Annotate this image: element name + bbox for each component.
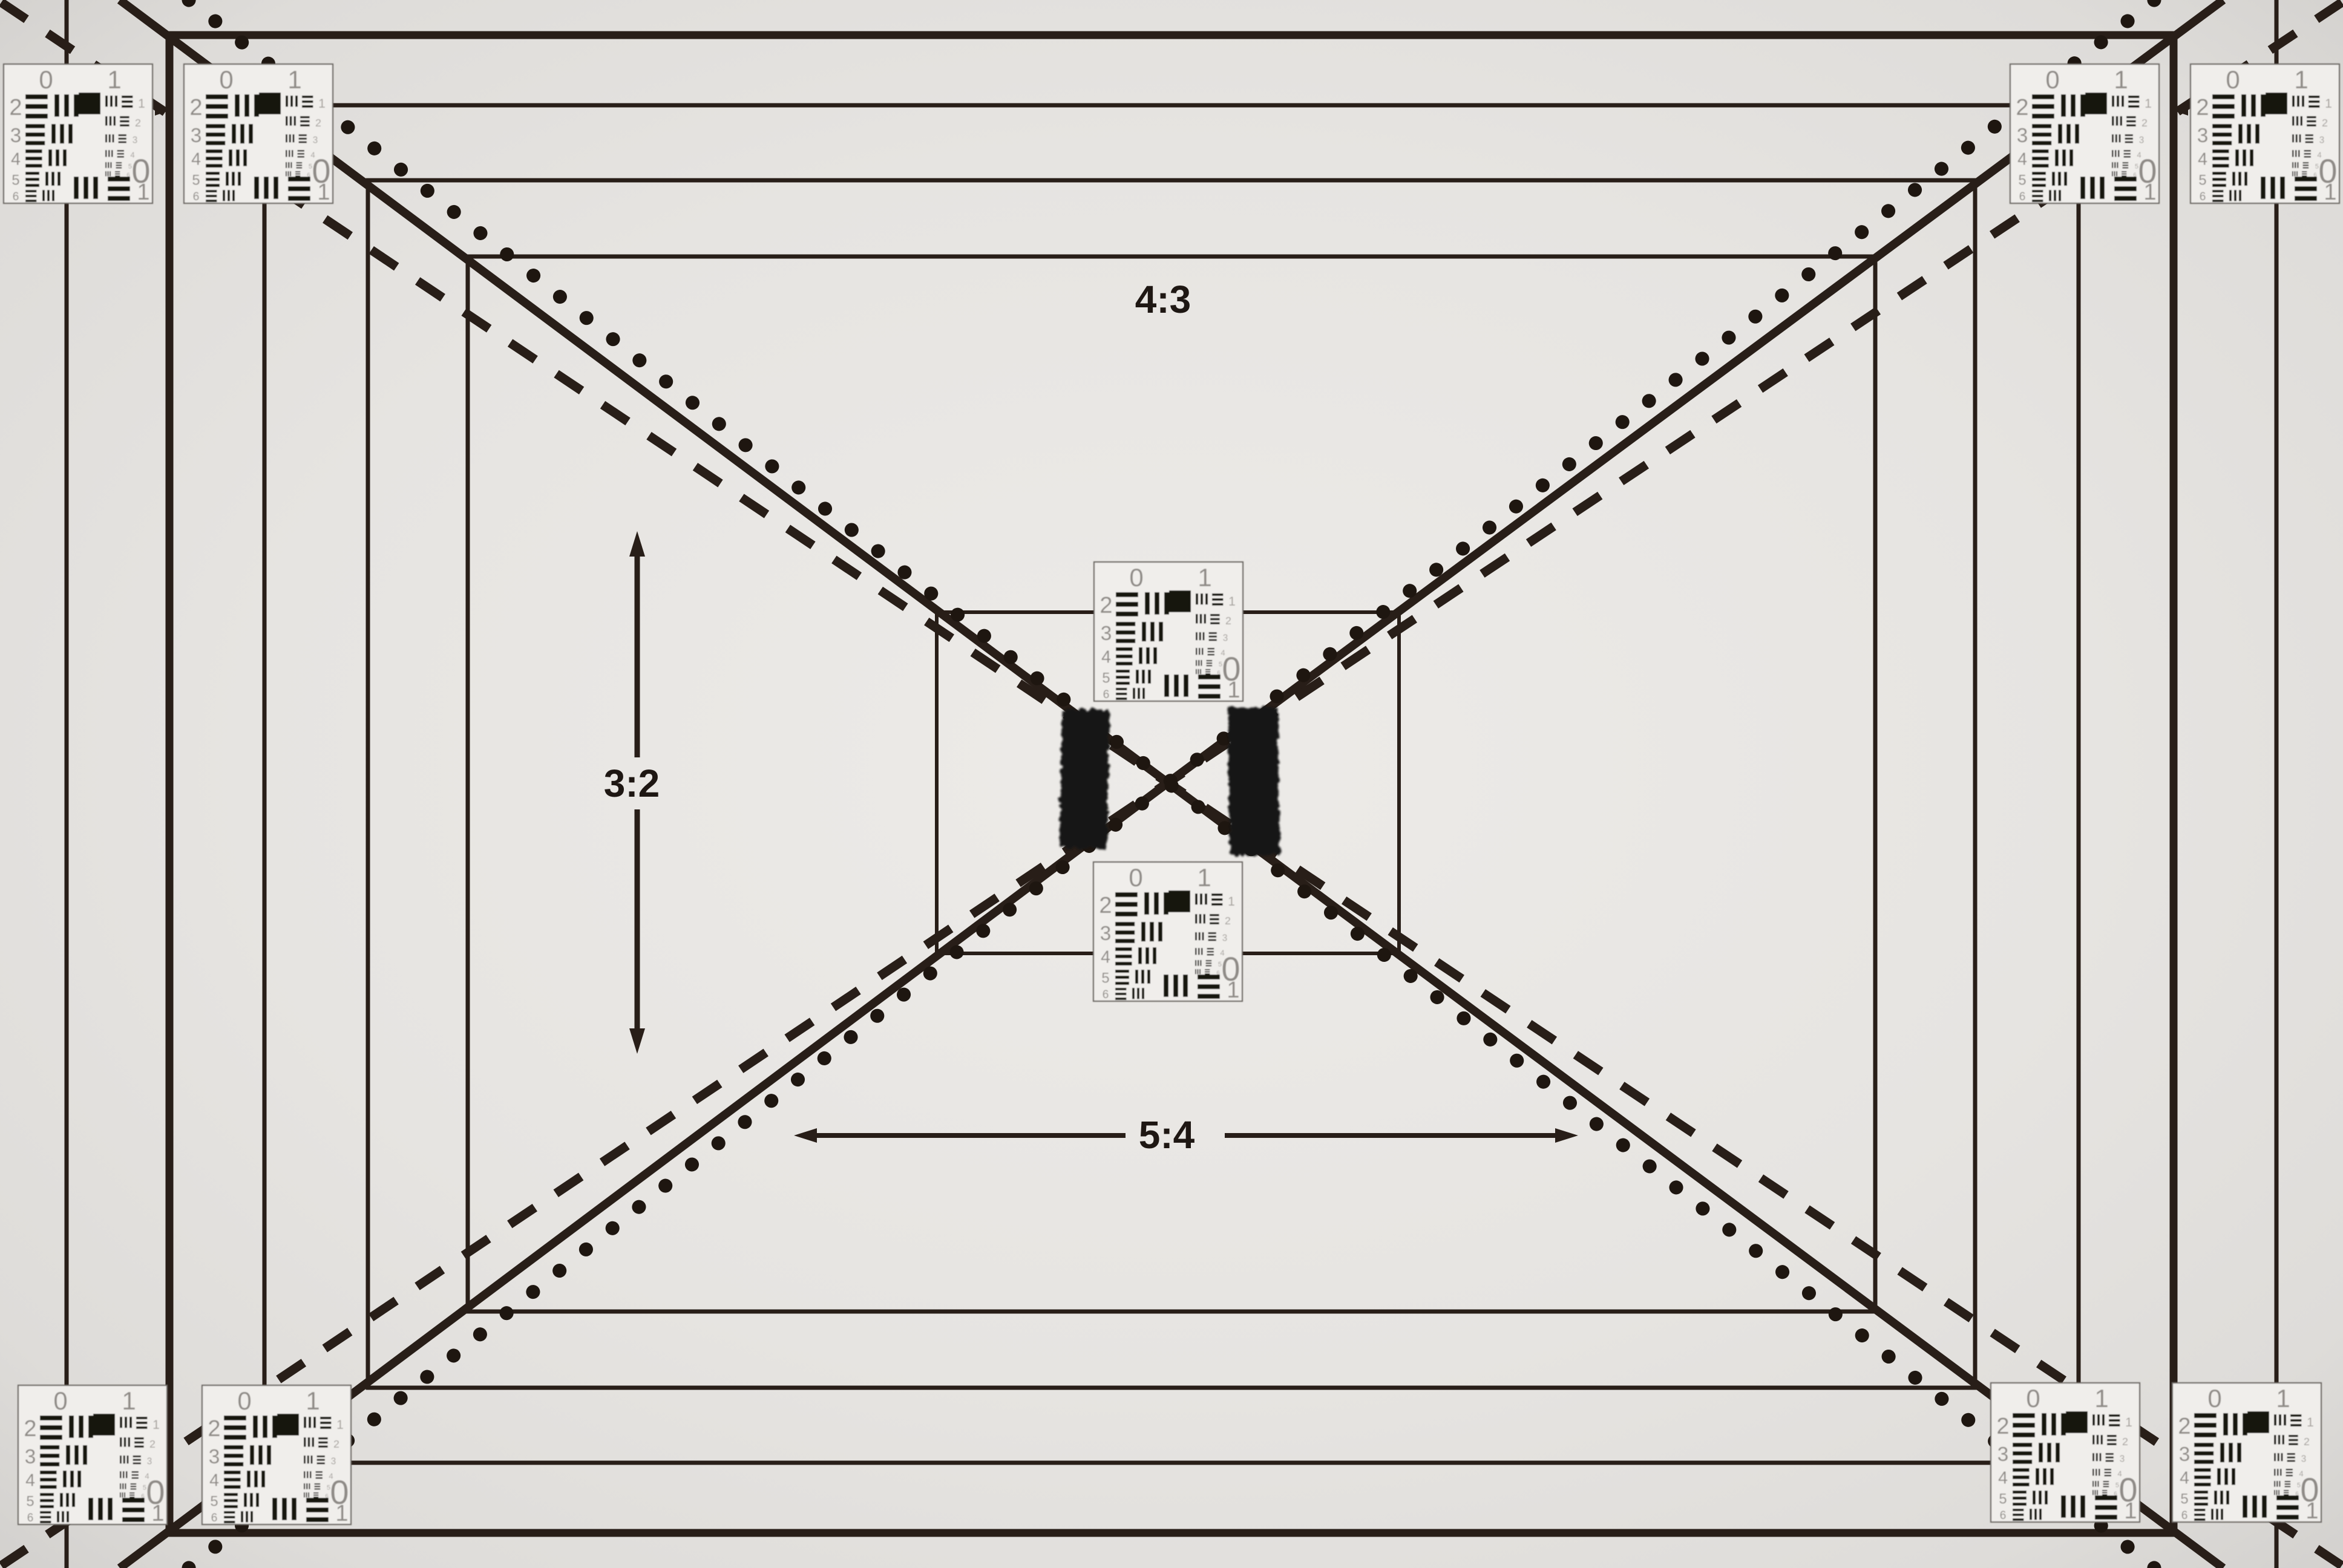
target-outer-top-right: 012345612345601	[2191, 64, 2339, 205]
target-number: 3	[1223, 633, 1228, 644]
target-number: 6	[13, 191, 19, 203]
target-number: 2	[333, 1438, 339, 1450]
target-number: 1	[2325, 97, 2332, 111]
target-number: 0	[2226, 65, 2240, 94]
target-number: 1	[122, 1387, 136, 1415]
target-number: 1	[138, 97, 145, 111]
target-inner-top-left: 012345612345601	[184, 64, 333, 205]
target-number: 0	[1129, 863, 1142, 892]
target-number: 4	[25, 1471, 35, 1491]
target-number: 2	[208, 1416, 220, 1442]
aspect-label-3-2: 3:2	[604, 762, 660, 805]
velcro-bar-right	[1228, 707, 1280, 855]
target-number: 3	[209, 1446, 220, 1468]
target-number: 4	[1998, 1469, 2008, 1488]
target-number: 3	[133, 136, 137, 146]
target-number: 5	[1999, 1491, 2007, 1507]
test-chart-photo: 4:3 3:2 5:4 0123456123456010123456123456…	[0, 0, 2343, 1568]
target-number: 3	[2179, 1443, 2191, 1466]
target-inner-bottom-right: 012345612345601	[1991, 1383, 2140, 1524]
target-number: 2	[9, 95, 22, 120]
target-number: 5	[210, 1493, 218, 1509]
target-number: 3	[191, 125, 202, 147]
target-number: 1	[1228, 895, 1235, 909]
target-number: 3	[1100, 923, 1112, 945]
target-number: 1	[287, 65, 301, 94]
target-number: 0	[237, 1387, 251, 1415]
target-number: 3	[1101, 622, 1112, 645]
target-number: 6	[211, 1512, 218, 1524]
aspect-label-4-3: 4:3	[1135, 278, 1191, 321]
target-number: 2	[2304, 1436, 2310, 1448]
target-number: 4	[1101, 948, 1110, 967]
target-number: 1	[2324, 180, 2336, 205]
target-number: 5	[2018, 172, 2026, 188]
target-number: 1	[151, 1501, 164, 1526]
target-number: 5	[26, 1493, 34, 1509]
target-outer-bottom-left: 012345612345601	[18, 1385, 167, 1526]
target-number: 1	[2307, 1416, 2314, 1429]
target-number: 2	[1225, 915, 1231, 927]
target-number: 3	[331, 1457, 336, 1467]
target-number: 6	[2181, 1509, 2188, 1522]
target-number: 1	[152, 1418, 160, 1432]
target-number: 2	[135, 117, 141, 129]
target-number: 0	[53, 1387, 67, 1415]
target-number: 1	[2094, 1384, 2108, 1413]
target-number: 3	[2120, 1454, 2125, 1465]
target-number: 2	[1099, 893, 1112, 918]
target-number: 2	[2016, 95, 2028, 120]
target-number: 3	[2301, 1454, 2306, 1465]
target-number: 1	[2114, 65, 2128, 94]
target-number: 6	[27, 1512, 34, 1524]
target-number: 1	[2294, 65, 2308, 94]
target-number: 1	[2125, 1416, 2132, 1429]
target-number: 0	[2026, 1384, 2040, 1413]
target-inner-top-right: 012345612345601	[2010, 64, 2159, 205]
target-number: 2	[2141, 117, 2148, 129]
target-number: 3	[313, 136, 318, 146]
target-center-bottom: 012345612345601	[1093, 862, 1242, 1003]
target-number: 2	[2196, 95, 2209, 120]
target-number: 1	[137, 180, 149, 205]
target-number: 0	[1129, 563, 1143, 592]
target-number: 6	[1103, 688, 1110, 701]
aspect-label-5-4: 5:4	[1139, 1113, 1195, 1157]
target-number: 3	[2139, 136, 2144, 146]
target-number: 2	[1099, 593, 1112, 618]
target-number: 1	[336, 1418, 344, 1432]
target-number: 0	[2045, 65, 2059, 94]
target-number: 3	[10, 125, 22, 147]
target-number: 6	[2200, 191, 2206, 203]
target-number: 1	[1198, 563, 1211, 592]
target-outer-bottom-right: 012345612345601	[2172, 1383, 2321, 1524]
target-number: 3	[25, 1446, 36, 1468]
target-number: 2	[189, 95, 202, 120]
target-number: 2	[149, 1438, 156, 1450]
target-number: 5	[11, 172, 19, 188]
target-number: 1	[335, 1501, 348, 1526]
target-number: 0	[2207, 1384, 2221, 1413]
target-number: 5	[2180, 1491, 2188, 1507]
target-number: 4	[2198, 150, 2207, 169]
target-number: 3	[1997, 1443, 2009, 1466]
target-number: 1	[2305, 1498, 2318, 1524]
target-number: 4	[209, 1471, 219, 1491]
target-number: 5	[1102, 670, 1110, 686]
target-number: 1	[317, 180, 330, 205]
target-number: 5	[1101, 970, 1109, 986]
target-number: 5	[192, 172, 200, 188]
target-number: 1	[1227, 978, 1239, 1003]
target-number: 2	[2122, 1436, 2128, 1448]
target-number: 2	[315, 117, 321, 129]
target-number: 4	[11, 150, 21, 169]
target-number: 3	[1222, 933, 1227, 944]
target-number: 2	[1225, 615, 1231, 627]
target-number: 1	[2145, 97, 2152, 111]
lens-test-chart: 4:3 3:2 5:4 0123456123456010123456123456…	[0, 0, 2343, 1568]
target-number: 1	[2276, 1384, 2290, 1413]
target-number: 3	[2197, 125, 2209, 147]
target-number: 6	[2000, 1509, 2007, 1522]
target-number: 0	[219, 65, 233, 94]
target-number: 2	[24, 1416, 36, 1442]
target-number: 6	[193, 191, 200, 203]
target-number: 1	[306, 1387, 319, 1415]
target-number: 6	[1103, 988, 1109, 1001]
target-number: 2	[2178, 1414, 2191, 1439]
target-number: 6	[2019, 191, 2026, 203]
target-number: 2	[2322, 117, 2328, 129]
velcro-bar-left	[1060, 708, 1110, 849]
target-number: 1	[2124, 1498, 2137, 1524]
target-number: 5	[2198, 172, 2206, 188]
target-number: 1	[1197, 863, 1211, 892]
target-outer-top-left: 012345612345601	[4, 64, 152, 205]
target-number: 3	[2017, 125, 2028, 147]
target-number: 3	[147, 1457, 152, 1467]
target-number: 2	[1996, 1414, 2009, 1439]
target-number: 1	[1228, 595, 1236, 609]
target-number: 4	[191, 150, 201, 169]
target-number: 4	[2017, 150, 2027, 169]
target-number: 0	[39, 65, 53, 94]
target-number: 4	[2180, 1469, 2189, 1488]
target-number: 1	[107, 65, 121, 94]
target-number: 4	[1101, 648, 1111, 667]
target-number: 3	[2319, 136, 2324, 146]
target-inner-bottom-left: 012345612345601	[202, 1385, 351, 1526]
target-number: 1	[1227, 678, 1240, 703]
target-number: 1	[318, 97, 326, 111]
target-number: 1	[2143, 180, 2156, 205]
target-center-top: 012345612345601	[1094, 562, 1243, 703]
